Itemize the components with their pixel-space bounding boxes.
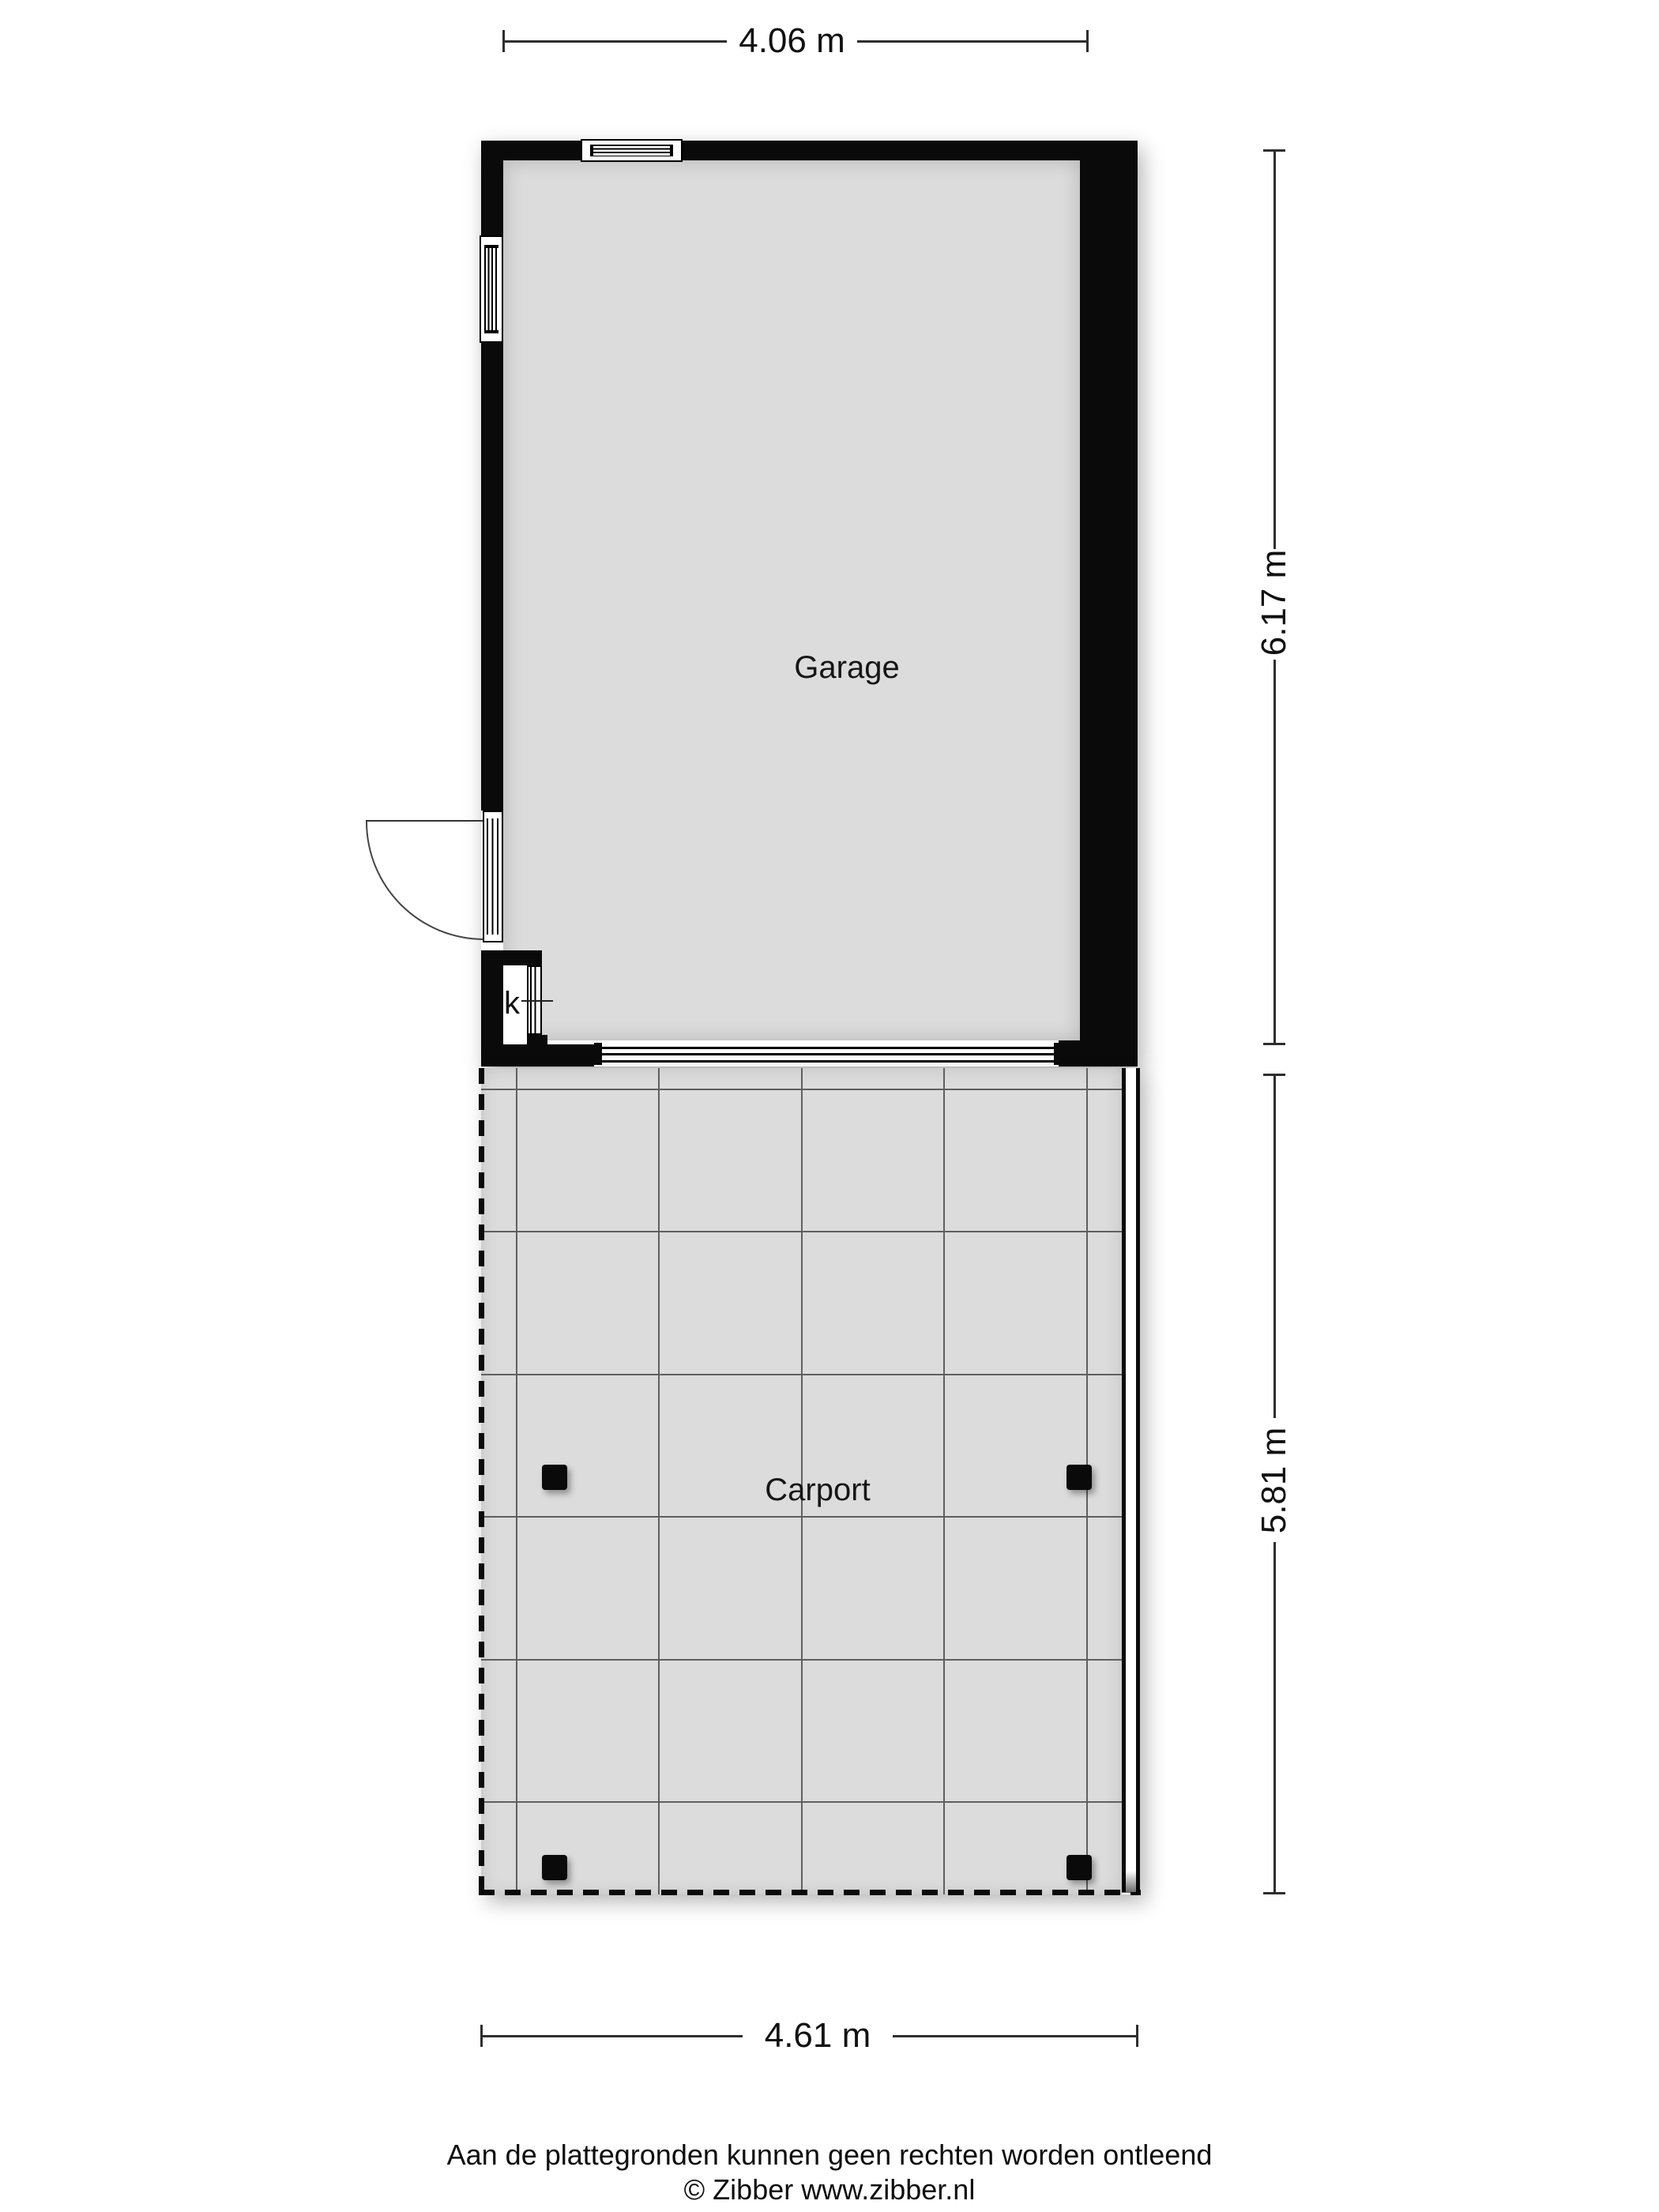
closet-label-leader-line (521, 1000, 553, 1002)
garage-wall-left-middle-segment (481, 341, 503, 811)
dimension-line-top (857, 40, 1088, 43)
carport-post (542, 1855, 567, 1880)
carport-dashed-edge-bottom (479, 1890, 1141, 1895)
dimension-tick (502, 30, 505, 52)
garage-door-icon (602, 1047, 1054, 1063)
window-icon-top (581, 139, 683, 162)
closet-wall-bottom (481, 1044, 594, 1066)
dimension-line-carport-height (1273, 1542, 1276, 1894)
carport-open-wall-right (1122, 1068, 1140, 1892)
door-icon-left (483, 811, 503, 942)
dimension-line-garage-height (1273, 150, 1276, 549)
closet-door-jamb (527, 1035, 547, 1046)
window-icon-left (480, 235, 503, 343)
garage-door-jamb-right (1054, 1043, 1062, 1065)
copyright-text: © Zibber www.zibber.nl (237, 2172, 1422, 2207)
garage-wall-top-right-segment (681, 141, 1138, 160)
dimension-tick (1263, 1043, 1285, 1045)
dimension-line-top (503, 40, 727, 43)
dimension-label-carport-height: 5.81 m (1255, 1421, 1293, 1540)
garage-wall-left-upper-segment (481, 141, 503, 237)
closet-label: k (498, 986, 526, 1021)
dimension-tick (1086, 30, 1089, 52)
garage-room-label: Garage (752, 650, 942, 685)
carport-post (1066, 1855, 1092, 1880)
carport-open-wall-shadow (1122, 1871, 1140, 1893)
dimension-line-bottom (481, 2035, 743, 2037)
dimension-tick (1136, 2025, 1138, 2047)
window-glazing-lines (484, 245, 498, 333)
dimension-tick (1263, 149, 1285, 152)
window-glazing-lines (590, 145, 673, 156)
garage-wall-right (1080, 141, 1138, 1066)
carport-post (542, 1465, 567, 1490)
grid-line (481, 1516, 1122, 1518)
grid-line (481, 1374, 1122, 1375)
disclaimer-text: Aan de plattegronden kunnen geen rechten… (237, 2138, 1422, 2172)
dimension-tick (1263, 1074, 1285, 1076)
grid-line (943, 1068, 945, 1894)
dimension-line-carport-height (1273, 1074, 1276, 1418)
grid-line (481, 1659, 1122, 1661)
garage-door-jamb-left (594, 1043, 602, 1065)
garage-floor (503, 160, 1080, 1040)
dimension-label-carport-width: 4.61 m (719, 2017, 916, 2055)
dimension-tick (480, 2025, 483, 2047)
dimension-line-garage-height (1273, 660, 1276, 1044)
grid-line (658, 1068, 660, 1894)
grid-line (481, 1089, 1122, 1090)
carport-dashed-edge-left (479, 1068, 484, 1894)
dimension-label-garage-width: 4.06 m (695, 22, 889, 60)
dimension-tick (1263, 1892, 1285, 1894)
dimension-line-bottom (893, 2035, 1138, 2037)
grid-line (516, 1068, 517, 1894)
grid-line (481, 1231, 1122, 1232)
carport-post (1066, 1465, 1092, 1490)
carport-room-label: Carport (715, 1473, 920, 1507)
door-swing-arc (366, 822, 484, 940)
door-panel-lines (487, 818, 499, 935)
garage-wall-bottom-right-block (1059, 1040, 1138, 1066)
dimension-label-garage-height: 6.17 m (1255, 544, 1293, 662)
floor-plan-page: k Garage Carport 4.06 m 6.17 m (0, 0, 1659, 2212)
garage-door-panel-line (602, 1053, 1054, 1055)
grid-line (481, 1801, 1122, 1803)
